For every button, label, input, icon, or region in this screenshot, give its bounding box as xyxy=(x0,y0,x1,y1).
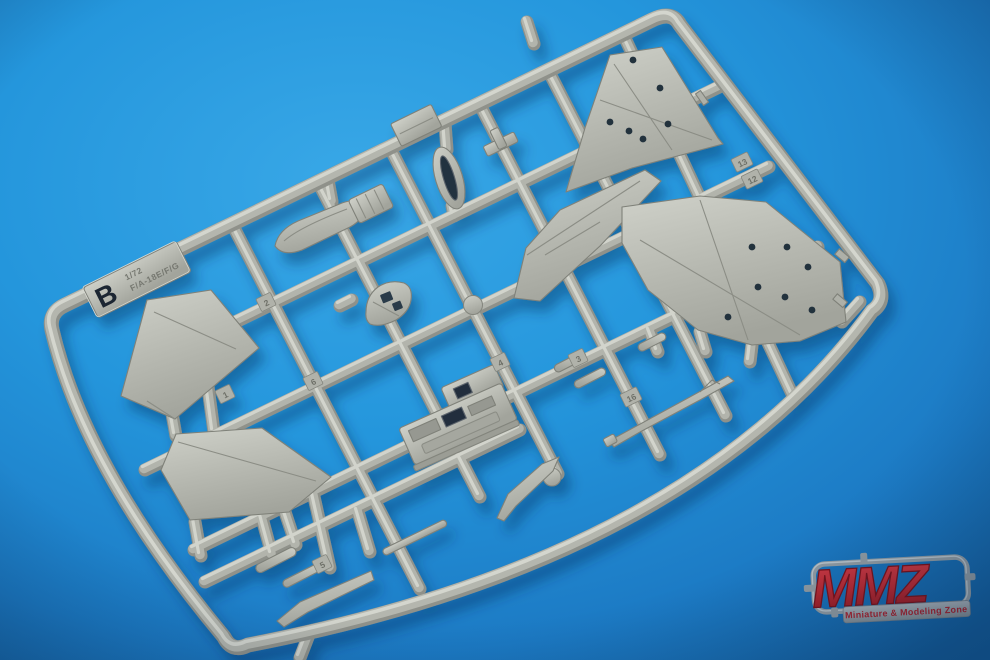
photo-model-kit-sprue: 2 6 1 4 3 16 1 xyxy=(0,0,990,660)
sprue-photo-canvas: 2 6 1 4 3 16 1 xyxy=(0,0,990,660)
runner-node xyxy=(464,296,483,315)
